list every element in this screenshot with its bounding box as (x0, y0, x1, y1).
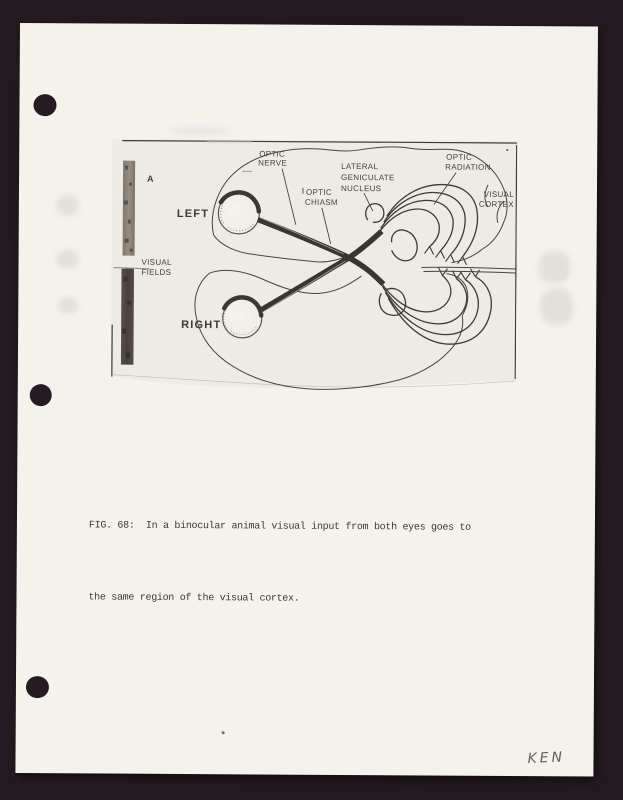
label-optic-radiation: RADIATION (445, 163, 491, 172)
punch-hole (26, 676, 49, 698)
stray-pencil-dot (222, 731, 225, 734)
figure-diagram: A OPTIC NERVE LATERAL GENICULATE NUCLEUS… (111, 139, 518, 393)
photocopy-smudge (58, 297, 78, 313)
punch-hole (33, 94, 56, 116)
right-eye (223, 297, 262, 338)
label-visual-cortex: VISUAL (484, 190, 515, 199)
left-eye (218, 192, 259, 234)
photocopy-smudge (538, 251, 570, 283)
label-left-eye: LEFT (177, 208, 209, 220)
photocopy-smudge (540, 288, 573, 325)
punch-hole (30, 384, 52, 406)
label-lgn: GENICULATE (341, 173, 395, 182)
label-optic-nerve: NERVE (258, 158, 287, 167)
caption-line-1: FIG. 68: In a binocular animal visual in… (89, 514, 471, 540)
stray-dot (506, 149, 508, 151)
label-visual-fields: FIELDS (141, 268, 171, 277)
scan-background: A OPTIC NERVE LATERAL GENICULATE NUCLEUS… (0, 0, 623, 800)
visual-field-bar-lower (121, 269, 134, 365)
label-optic-radiation: OPTIC (446, 153, 472, 162)
label-optic-nerve: OPTIC (259, 149, 285, 158)
label-visual-fields: VISUAL (142, 258, 173, 267)
label-visual-cortex: CORTEX (479, 200, 514, 209)
photocopy-smudge (57, 195, 79, 215)
caption-line-2: the same region of the visual cortex. (88, 586, 470, 612)
handwritten-annotation: KEN (527, 749, 565, 767)
figure-caption: FIG. 68: In a binocular animal visual in… (88, 466, 471, 660)
label-optic-chiasm: OPTIC (306, 188, 332, 197)
label-lgn: LATERAL (341, 162, 378, 171)
label-lgn: NUCLEUS (341, 184, 381, 193)
panel-label: A (147, 174, 154, 184)
document-page: A OPTIC NERVE LATERAL GENICULATE NUCLEUS… (15, 23, 598, 777)
visual-field-bar-upper (123, 161, 136, 256)
photocopy-smudge (57, 250, 79, 268)
photocopy-smudge (169, 127, 229, 135)
label-optic-chiasm: CHIASM (305, 198, 338, 207)
label-right-eye: RIGHT (181, 319, 221, 331)
